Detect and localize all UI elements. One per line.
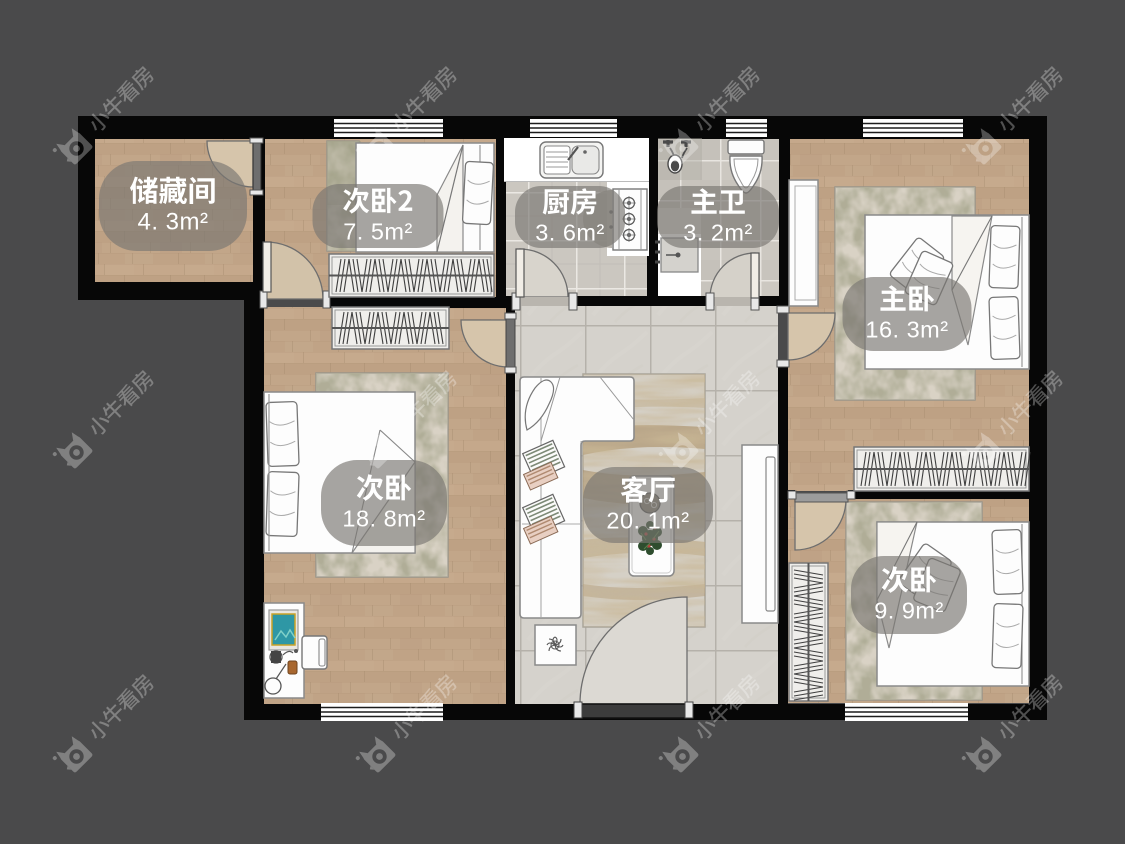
svg-text:7. 5m²: 7. 5m² xyxy=(343,219,413,245)
svg-text:3. 2m²: 3. 2m² xyxy=(683,220,753,246)
svg-text:3. 6m²: 3. 6m² xyxy=(535,220,605,246)
svg-text:18. 8m²: 18. 8m² xyxy=(342,506,425,532)
svg-text:9. 9m²: 9. 9m² xyxy=(874,598,944,624)
svg-text:20. 1m²: 20. 1m² xyxy=(606,508,689,534)
svg-text:4. 3m²: 4. 3m² xyxy=(137,209,208,236)
svg-text:16. 3m²: 16. 3m² xyxy=(865,317,948,343)
